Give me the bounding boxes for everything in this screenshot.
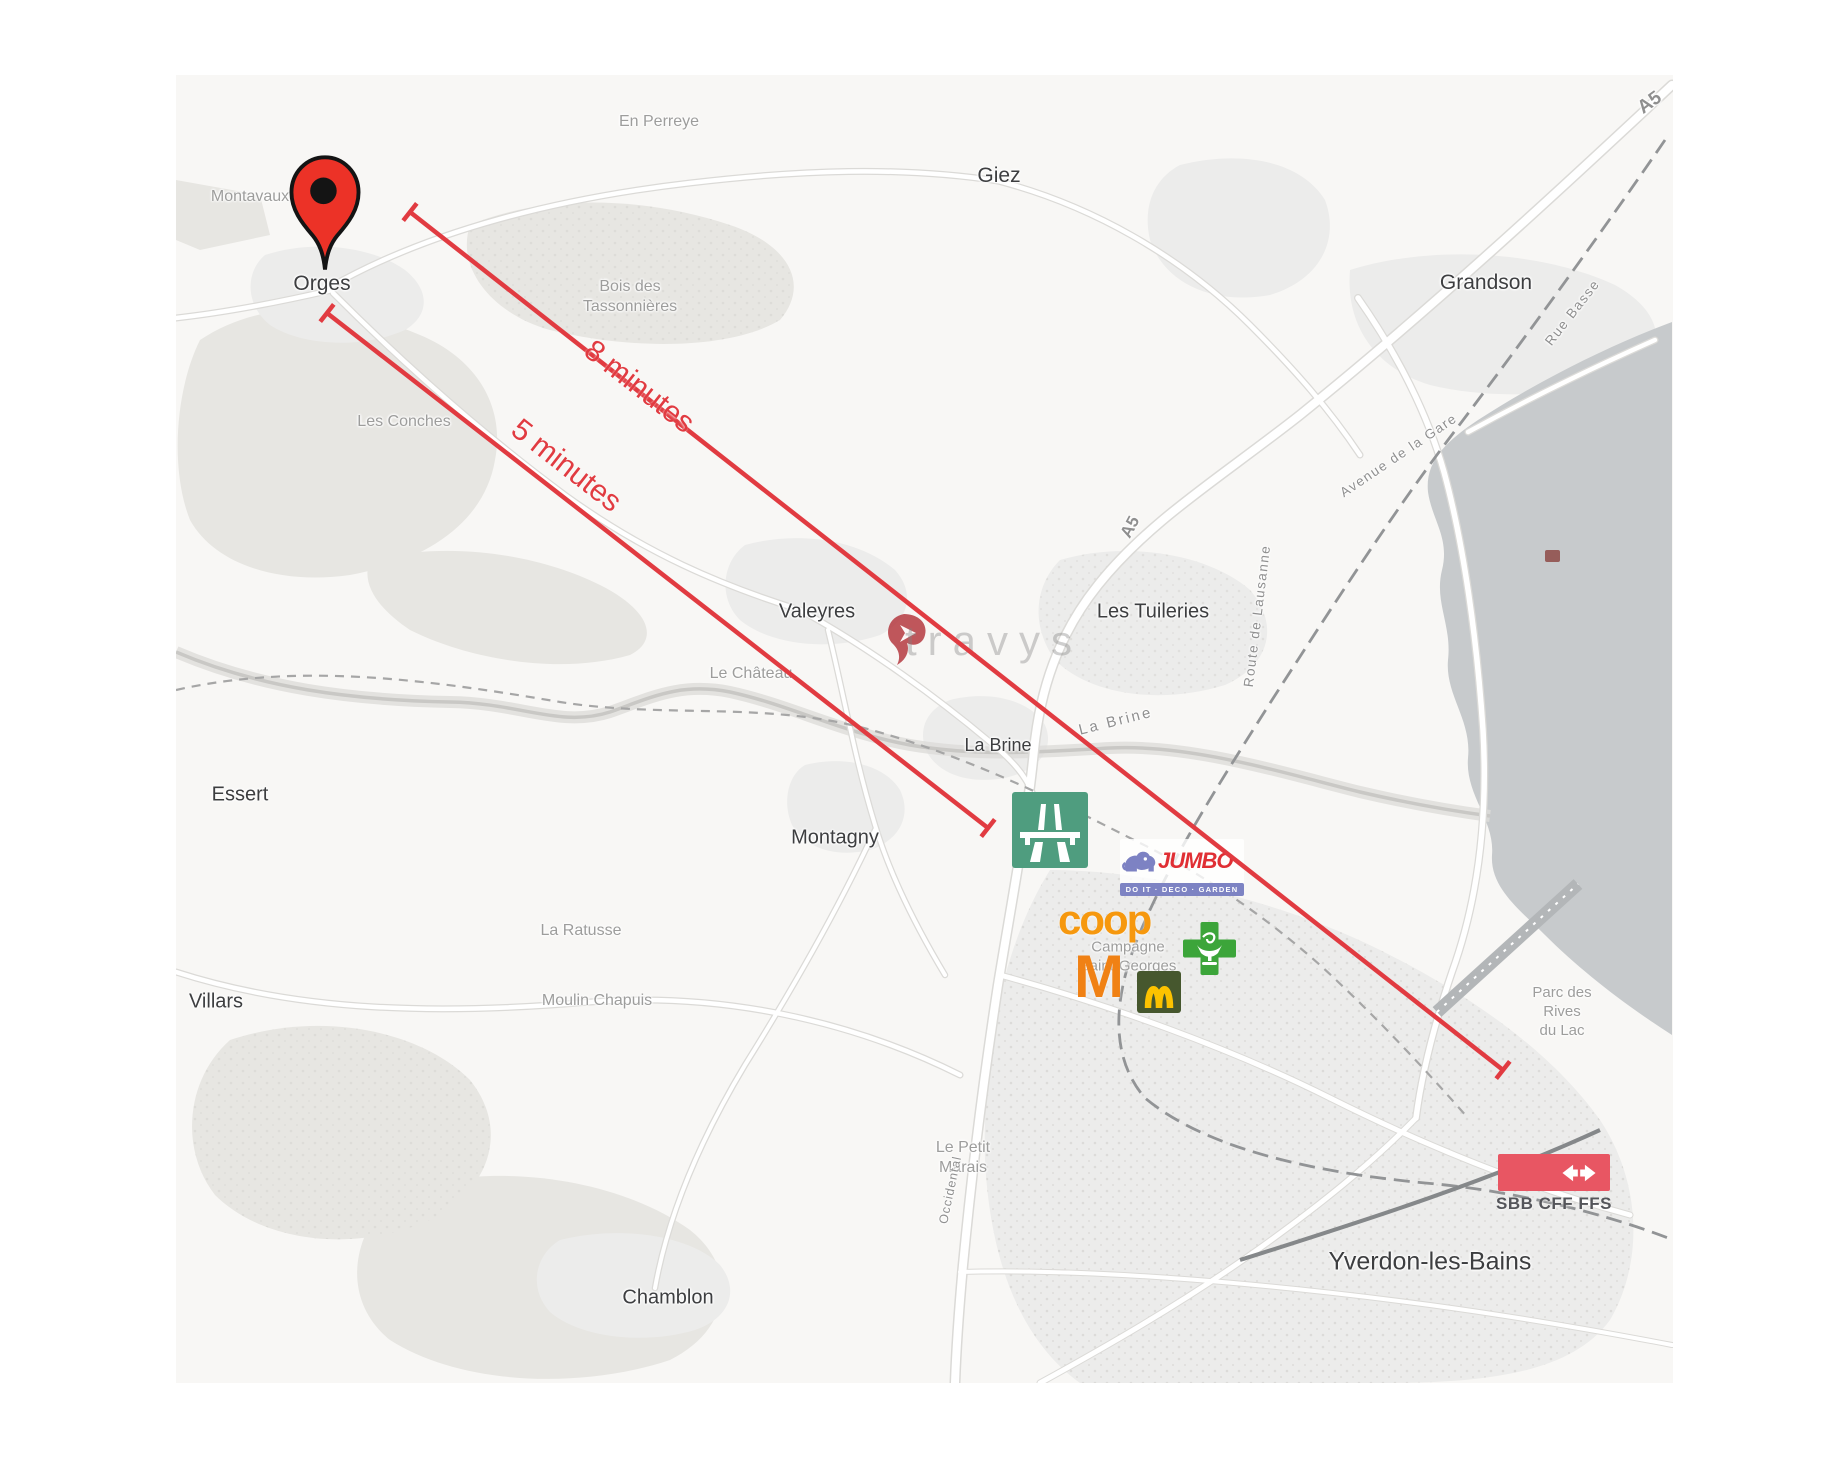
migros-logo: M xyxy=(1074,942,1124,1011)
pharmacy-cross-icon xyxy=(1183,922,1236,980)
jumbo-logo: JUMBO DO IT · DECO · GARDEN xyxy=(1120,839,1244,896)
motorway-junction-icon xyxy=(1012,792,1088,873)
sbb-station-logo xyxy=(1498,1154,1610,1191)
sbb-station-label: SBB CFF FFS xyxy=(1494,1194,1614,1214)
jumbo-tagline: DO IT · DECO · GARDEN xyxy=(1120,883,1244,896)
travys-logo-text: travys xyxy=(905,617,1083,665)
sbb-double-arrow-icon xyxy=(1553,1161,1605,1185)
jumbo-elephant-icon xyxy=(1120,846,1158,876)
map-canvas[interactable]: OrgesGiezGrandsonValeyresLes TuileriesLa… xyxy=(0,0,1824,1476)
mcdonalds-logo xyxy=(1137,971,1181,1013)
jumbo-logo-text: JUMBO xyxy=(1158,848,1232,874)
mcdonalds-arches-icon xyxy=(1137,971,1181,1013)
coop-logo: coop xyxy=(1058,896,1150,944)
